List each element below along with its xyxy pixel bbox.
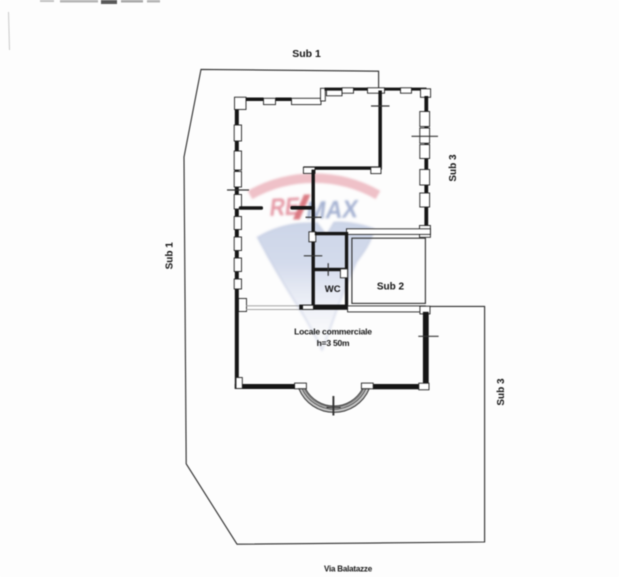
svg-text:Sub 3: Sub 3	[448, 154, 459, 182]
svg-text:Sub 1: Sub 1	[164, 242, 175, 270]
svg-text:Locale commerciale: Locale commerciale	[294, 327, 372, 337]
svg-text:Via Balatazze: Via Balatazze	[324, 565, 373, 574]
svg-text:Sub 1: Sub 1	[292, 48, 321, 60]
svg-text:WC: WC	[325, 284, 341, 295]
svg-text:Sub 2: Sub 2	[377, 282, 405, 293]
svg-text:Sub 3: Sub 3	[496, 378, 507, 406]
svg-text:h=3 50m: h=3 50m	[317, 338, 350, 348]
